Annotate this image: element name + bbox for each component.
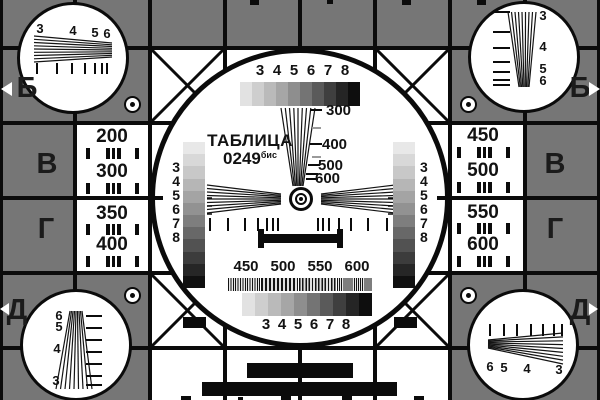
burst-label: 600	[337, 258, 377, 275]
burst-label: 450	[226, 258, 266, 275]
card-number-suffix: бис	[261, 150, 277, 160]
dial-label: 4	[66, 24, 80, 37]
frequency-bars	[84, 183, 140, 194]
scale-label: 4	[269, 63, 285, 78]
grayscale-step	[393, 227, 415, 239]
grid-line-vertical	[0, 0, 3, 400]
bottom-grayscale-labels: 3 4 5 6 7 8	[242, 317, 372, 333]
corner-dial-bottom-left	[20, 289, 132, 400]
strip-label: 6	[164, 202, 180, 216]
strip-label: 8	[420, 230, 436, 244]
grayscale-step	[312, 82, 324, 106]
registration-mark-icon	[124, 96, 141, 113]
grayscale-step	[300, 82, 312, 106]
dial-label: 6	[483, 360, 497, 373]
frequency-bars	[455, 182, 511, 193]
grayscale-step	[183, 227, 205, 239]
scale-label: 5	[290, 317, 306, 332]
strip-label: 3	[164, 160, 180, 174]
left-grayscale-strip	[183, 142, 205, 288]
grayscale-step	[183, 142, 205, 154]
edge-letter-right-g: Г	[541, 215, 569, 244]
strip-label: 6	[420, 202, 436, 216]
grayscale-step	[393, 215, 415, 227]
scale-label: 8	[338, 317, 354, 332]
grayscale-step	[393, 276, 415, 288]
grayscale-step	[288, 82, 300, 106]
right-grayscale-strip	[393, 142, 415, 288]
strip-label: 3	[420, 160, 436, 174]
cutoff-glyph	[281, 396, 291, 400]
grayscale-step	[393, 252, 415, 264]
burst-segment	[299, 278, 336, 291]
frequency-bars	[455, 147, 511, 158]
scale-label: 5	[286, 63, 302, 78]
grayscale-step	[346, 293, 359, 316]
grayscale-step	[359, 293, 372, 316]
frequency-value: 200	[82, 127, 142, 146]
grayscale-step	[183, 239, 205, 251]
frequency-value: 300	[82, 162, 142, 181]
tv-test-card: 3 4 5 6 7 8 300 400 500 600 ТАБЛИЦА 0249…	[0, 0, 600, 400]
frequency-burst-bar	[228, 278, 372, 291]
scale-label: 4	[274, 317, 290, 332]
black-reference-bar	[262, 234, 339, 243]
strip-label: 7	[164, 216, 180, 230]
burst-label: 500	[263, 258, 303, 275]
center-target-icon	[289, 187, 313, 211]
frequency-value: 550	[453, 203, 513, 222]
grayscale-step	[183, 264, 205, 276]
arrow-left-icon	[1, 82, 12, 96]
grayscale-step	[393, 166, 415, 178]
cutoff-glyph	[414, 396, 424, 400]
grayscale-step	[183, 203, 205, 215]
frequency-bars	[84, 256, 140, 267]
dial-label: 3	[552, 363, 566, 376]
grayscale-step	[183, 191, 205, 203]
registration-mark-icon	[460, 287, 477, 304]
black-bar-end-cap	[258, 229, 264, 248]
grayscale-step	[393, 191, 415, 203]
card-number: 0249бис	[198, 149, 302, 169]
grayscale-step	[307, 293, 320, 316]
cutoff-glyph	[250, 0, 259, 5]
dial-label: 5	[52, 320, 66, 333]
dial-label: 4	[536, 40, 550, 53]
corner-dial-top-right	[468, 1, 580, 113]
edge-letter-left-v: В	[33, 150, 61, 179]
card-title: ТАБЛИЦА	[198, 131, 302, 151]
burst-segment	[337, 278, 372, 291]
grayscale-step	[255, 293, 268, 316]
frequency-bars	[84, 148, 140, 159]
burst-segment	[261, 278, 298, 291]
cutoff-glyph	[342, 396, 352, 400]
grayscale-step	[252, 82, 264, 106]
grayscale-step	[294, 293, 307, 316]
dial-label: 3	[33, 22, 47, 35]
grayscale-step	[393, 239, 415, 251]
grayscale-step	[393, 142, 415, 154]
bottom-black-bar-short	[247, 363, 353, 378]
scale-label: 7	[322, 317, 338, 332]
scale-label: 8	[337, 63, 353, 78]
dial-label: 3	[49, 374, 63, 387]
dial-label: 6	[536, 74, 550, 87]
arrow-left-icon	[0, 303, 9, 315]
cutoff-glyph	[402, 0, 411, 5]
registration-mark-icon	[460, 96, 477, 113]
cutoff-glyph	[477, 0, 486, 5]
grayscale-step	[268, 293, 281, 316]
strip-label: 7	[420, 216, 436, 230]
grayscale-step	[320, 293, 333, 316]
grayscale-step	[276, 82, 288, 106]
grayscale-step	[183, 276, 205, 288]
grayscale-step	[264, 82, 276, 106]
scale-label: 3	[252, 63, 268, 78]
wedge-label-300: 300	[326, 103, 351, 118]
cutoff-glyph	[327, 0, 333, 4]
dial-label: 6	[100, 27, 114, 40]
bottom-grayscale-scale	[242, 293, 372, 316]
wedge-label-600: 600	[315, 171, 340, 186]
strip-label: 5	[164, 188, 180, 202]
black-bar-end-cap	[337, 229, 343, 248]
edge-letter-left-g: Г	[32, 215, 60, 244]
burst-labels: 450 500 550 600	[228, 258, 378, 272]
grayscale-step	[183, 252, 205, 264]
grayscale-step	[393, 154, 415, 166]
frequency-bars	[455, 223, 511, 234]
black-patch	[394, 317, 417, 328]
strip-label: 4	[164, 174, 180, 188]
black-patch	[183, 317, 206, 328]
bottom-black-bar-long	[202, 382, 397, 396]
edge-letter-right-v: В	[541, 150, 569, 179]
dial-label: 3	[536, 9, 550, 22]
dial-label: 4	[50, 342, 64, 355]
grayscale-step	[281, 293, 294, 316]
scale-label: 3	[258, 317, 274, 332]
scale-label: 6	[303, 63, 319, 78]
cutoff-glyph	[181, 396, 191, 400]
strip-label: 4	[420, 174, 436, 188]
dial-label: 4	[520, 362, 534, 375]
grayscale-step	[240, 82, 252, 106]
dial-label: 5	[497, 361, 511, 374]
grayscale-step	[183, 166, 205, 178]
scale-label: 6	[306, 317, 322, 332]
card-number-value: 0249	[223, 149, 261, 168]
grayscale-step	[183, 215, 205, 227]
registration-mark-icon	[124, 287, 141, 304]
edge-letter-left-b: Б	[13, 74, 41, 103]
strip-label: 8	[164, 230, 180, 244]
frequency-bars	[455, 256, 511, 267]
frequency-value: 400	[82, 235, 142, 254]
frequency-value: 500	[453, 161, 513, 180]
arrow-right-icon	[589, 303, 598, 315]
grayscale-step	[333, 293, 346, 316]
top-grayscale-labels: 3 4 5 6 7 8	[240, 63, 360, 79]
strip-label: 5	[420, 188, 436, 202]
grayscale-step	[393, 203, 415, 215]
frequency-value: 450	[453, 126, 513, 145]
grayscale-step	[393, 264, 415, 276]
grayscale-step	[183, 179, 205, 191]
grayscale-step	[242, 293, 255, 316]
burst-label: 550	[300, 258, 340, 275]
grayscale-step	[183, 154, 205, 166]
frequency-value: 350	[82, 204, 142, 223]
burst-segment	[228, 278, 260, 291]
arrow-right-icon	[589, 82, 600, 96]
corner-dial-bottom-right	[467, 289, 579, 400]
scale-label: 7	[320, 63, 336, 78]
frequency-value: 600	[453, 235, 513, 254]
grayscale-step	[393, 179, 415, 191]
wedge-label-400: 400	[322, 137, 347, 152]
